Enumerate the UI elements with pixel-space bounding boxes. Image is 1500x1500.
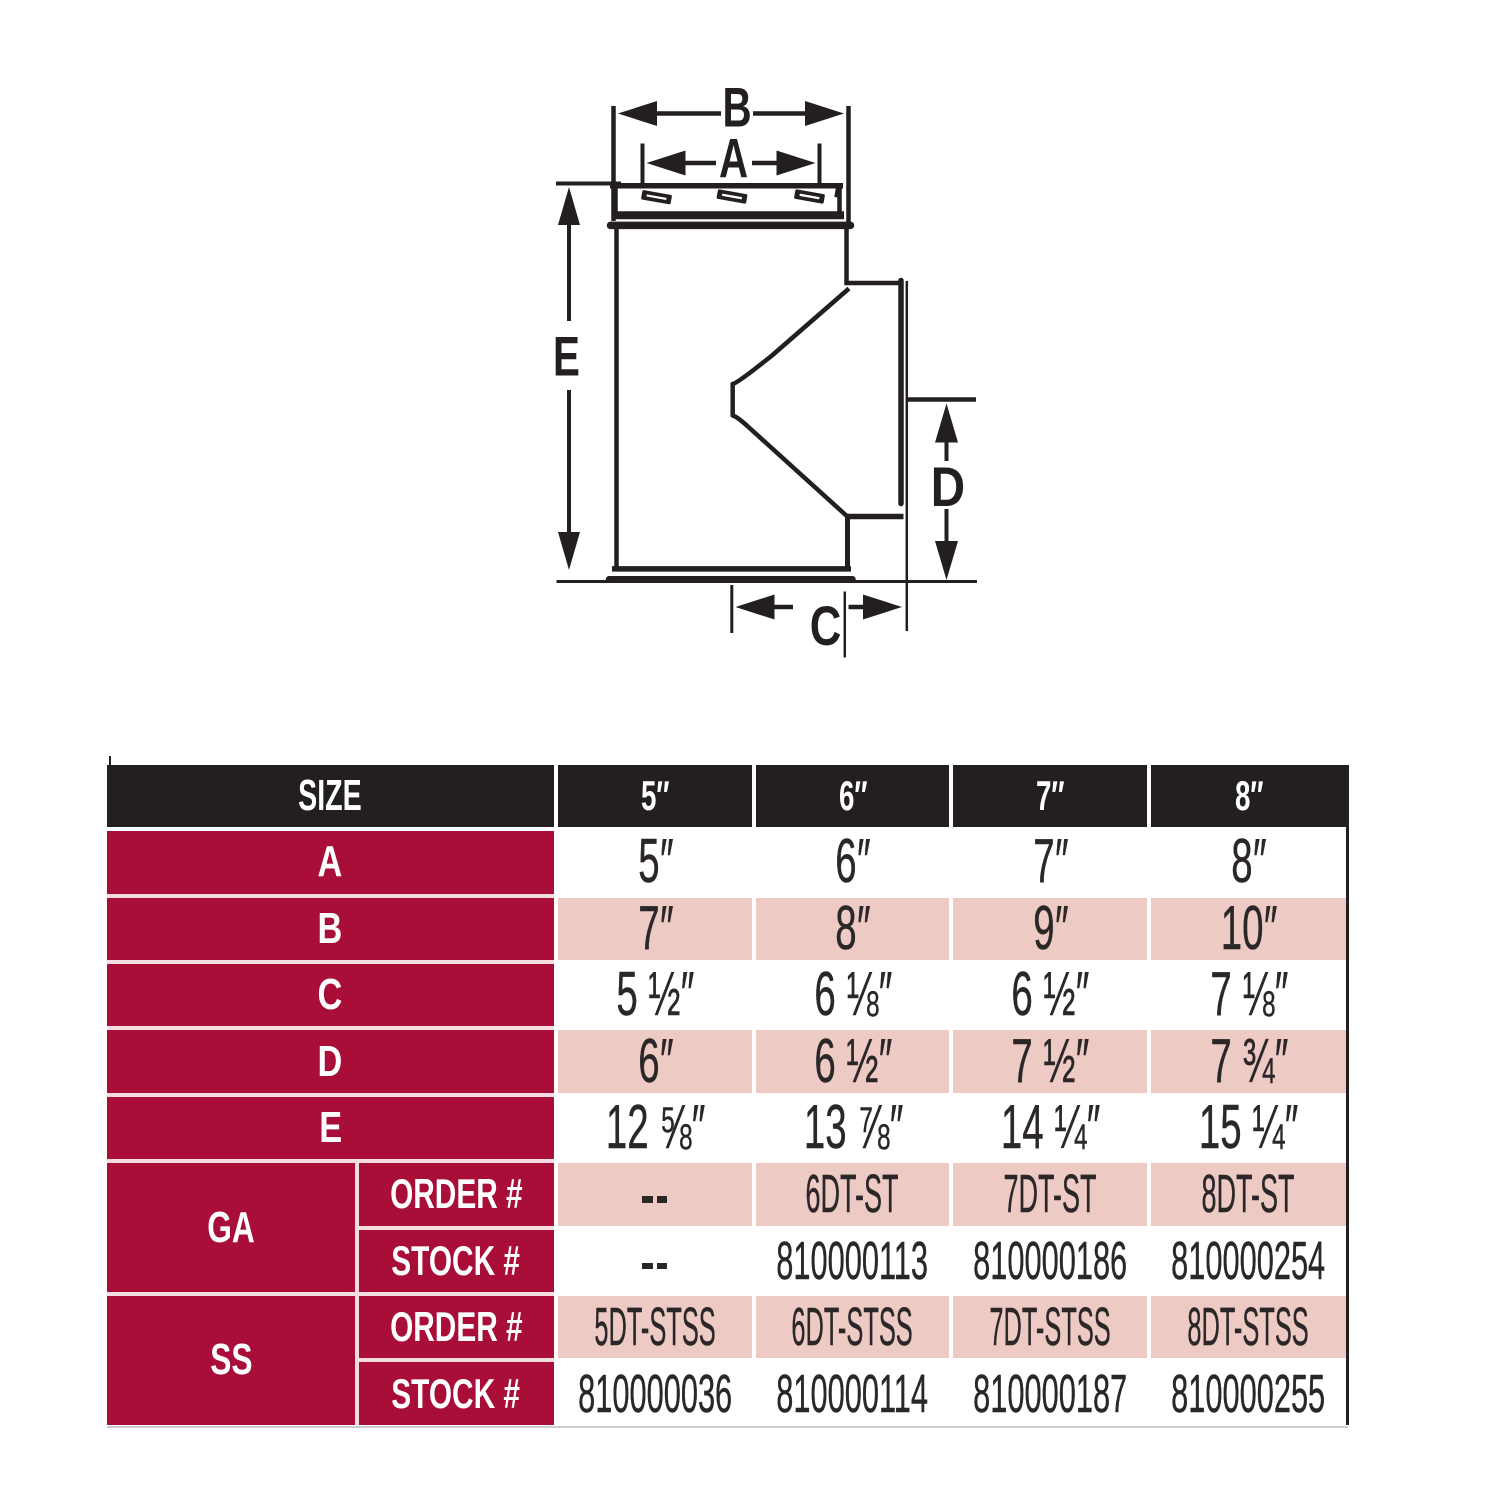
svg-text:A: A bbox=[719, 128, 748, 190]
svg-text:C: C bbox=[810, 595, 842, 657]
svg-text:E: E bbox=[553, 326, 580, 388]
svg-text:D: D bbox=[931, 456, 965, 518]
